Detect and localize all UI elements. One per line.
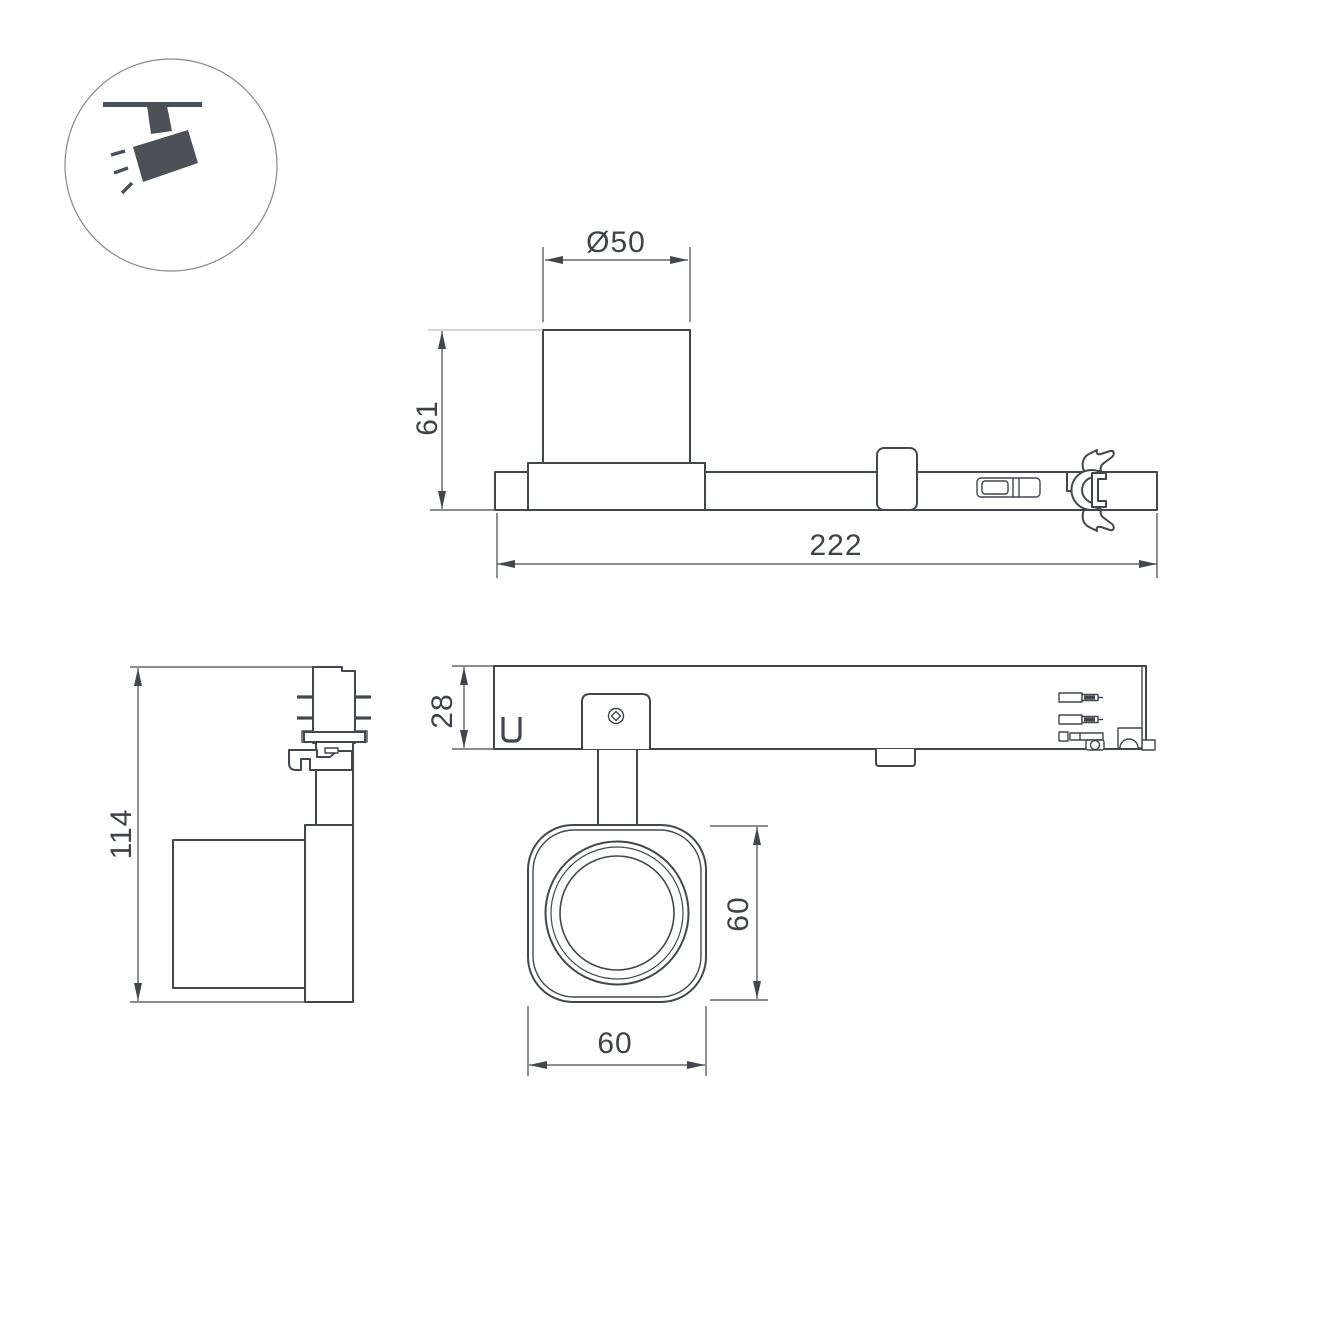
arrowhead-top <box>460 667 468 685</box>
dim-label-diameter: Ø50 <box>586 226 646 259</box>
latch-wing-bottom <box>1083 510 1114 531</box>
slider-switch <box>977 478 1040 497</box>
dim-label-height: 114 <box>105 809 138 860</box>
arrowhead-top <box>438 331 446 349</box>
head-outline-outer <box>528 825 706 1002</box>
dim-head-height-60: 60 <box>710 826 768 1000</box>
dim-length-222: 222 <box>497 513 1157 578</box>
left-side-view: 114 <box>105 667 371 1002</box>
arrowhead-bottom <box>460 730 468 748</box>
arrowhead-top <box>753 827 761 845</box>
contact-pin <box>1084 718 1095 722</box>
roller-housing <box>1086 740 1104 750</box>
arrowhead-right <box>687 1061 705 1069</box>
arrowhead-top <box>134 668 142 686</box>
drawing-svg: Ø50 61 222 <box>0 0 1331 1331</box>
top-side-view: Ø50 61 222 <box>411 226 1157 578</box>
dim-head-width-60: 60 <box>528 1006 706 1076</box>
lamp-body <box>305 825 353 1002</box>
arrowhead-left <box>545 256 563 264</box>
ceiling-spotlight-icon <box>65 59 277 271</box>
small-block <box>1059 732 1068 741</box>
contact-base <box>1059 715 1082 724</box>
flat-block <box>1070 733 1103 740</box>
mid-tab <box>877 448 917 510</box>
latch-wing-top <box>1083 450 1114 471</box>
dim-label-height: 61 <box>411 400 444 435</box>
arrowhead-left <box>529 1061 547 1069</box>
lens-barrel <box>173 840 305 988</box>
bottom-tab <box>876 749 915 766</box>
hook-slot <box>325 748 338 753</box>
plate <box>304 732 365 742</box>
dim-label-length: 222 <box>809 529 862 562</box>
dim-label-head-height: 60 <box>722 896 755 931</box>
dim-label-head-width: 60 <box>597 1027 632 1060</box>
arrowhead-left <box>497 560 515 568</box>
lamp-head <box>528 825 706 1002</box>
arrowhead-bottom <box>438 491 446 509</box>
dim-diameter-50: Ø50 <box>543 226 690 322</box>
bar-foot <box>1142 740 1155 750</box>
arrowhead-bottom <box>134 983 142 1001</box>
screw-bracket <box>582 694 650 749</box>
base-block <box>528 463 705 510</box>
technical-drawing-page: Ø50 61 222 <box>0 0 1331 1331</box>
front-view: 28 60 60 <box>426 666 1155 1076</box>
arrowhead-bottom <box>753 981 761 999</box>
dim-track-height-28: 28 <box>426 666 494 749</box>
stem <box>598 749 637 826</box>
arrowhead-right <box>1139 560 1157 568</box>
contact-base <box>1059 693 1082 702</box>
dim-label-track-height: 28 <box>426 693 459 728</box>
cylinder-body <box>543 330 690 463</box>
contact-pin <box>1084 696 1095 700</box>
arrowhead-right <box>670 256 688 264</box>
